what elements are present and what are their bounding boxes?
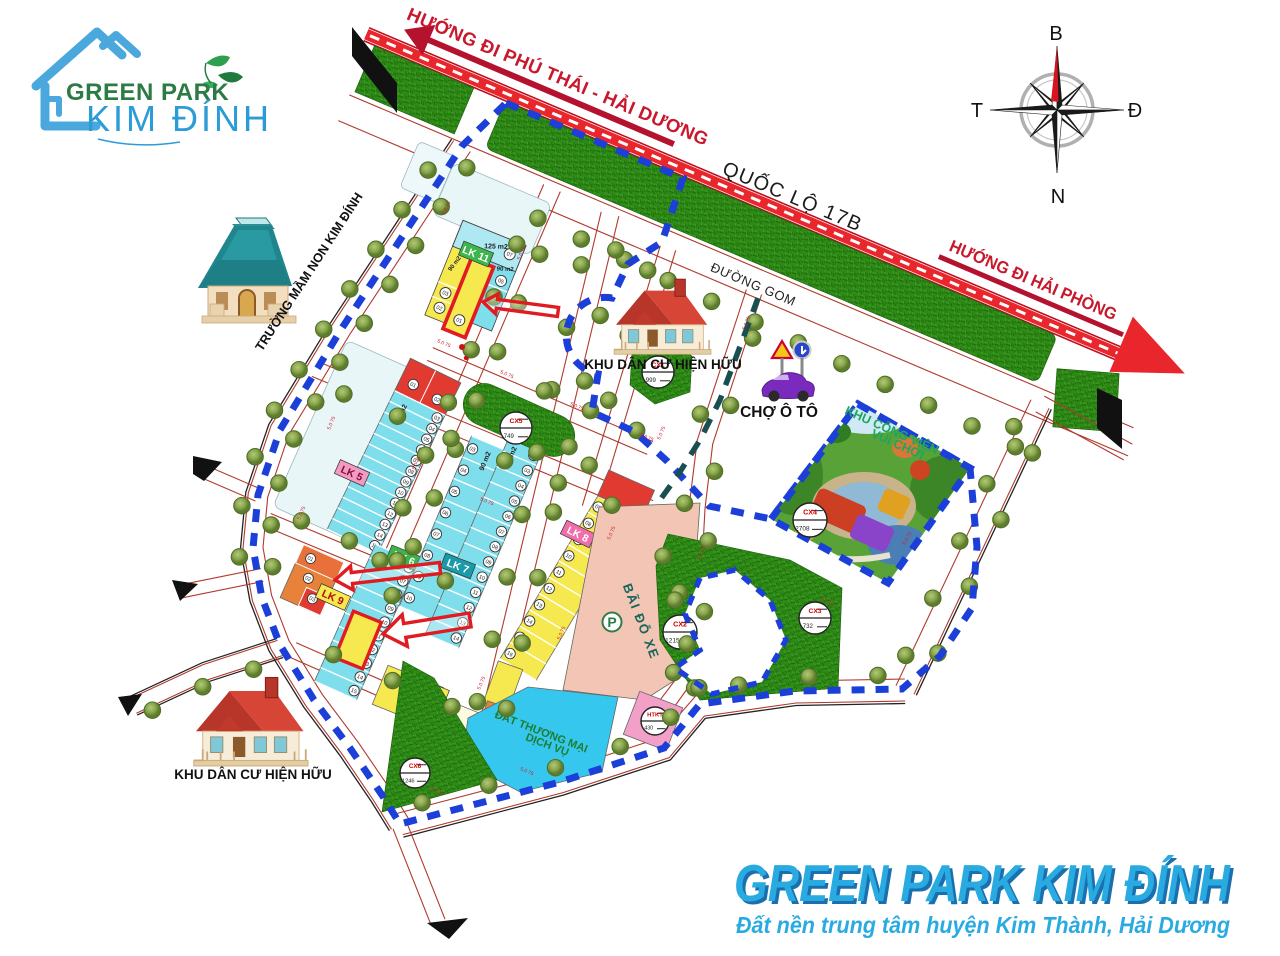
svg-text:Đất nền trung tâm huyện Kim Th: Đất nền trung tâm huyện Kim Thành, Hải D… xyxy=(736,912,1230,938)
svg-text:CX2: CX2 xyxy=(673,621,687,629)
svg-text:B: B xyxy=(1049,23,1062,45)
svg-text:CX6: CX6 xyxy=(409,763,422,770)
svg-text:KHU DÂN CƯ HIỆN HỮU: KHU DÂN CƯ HIỆN HỮU xyxy=(174,767,331,782)
svg-text:HTKT: HTKT xyxy=(647,713,663,719)
svg-text:KIM ĐÍNH: KIM ĐÍNH xyxy=(86,98,272,139)
svg-text:90 m2: 90 m2 xyxy=(497,267,515,274)
svg-text:T: T xyxy=(971,100,983,122)
svg-text:1215: 1215 xyxy=(665,638,680,645)
svg-text:2708: 2708 xyxy=(795,526,810,533)
svg-text:N: N xyxy=(1051,186,1065,208)
svg-text:749: 749 xyxy=(504,433,515,440)
svg-text:732: 732 xyxy=(803,623,814,630)
svg-text:430: 430 xyxy=(644,726,653,732)
svg-text:999: 999 xyxy=(646,377,657,384)
svg-text:1246: 1246 xyxy=(402,778,415,784)
svg-text:GREEN PARK KIM ĐÍNH: GREEN PARK KIM ĐÍNH xyxy=(734,855,1231,913)
svg-text:CX3: CX3 xyxy=(808,608,821,615)
svg-text:KHU DÂN CƯ HIỆN HỮU: KHU DÂN CƯ HIỆN HỮU xyxy=(584,357,741,372)
svg-text:P: P xyxy=(607,614,616,630)
svg-text:CX5: CX5 xyxy=(509,418,522,425)
svg-text:CX4: CX4 xyxy=(803,509,817,517)
svg-text:125 m2: 125 m2 xyxy=(484,243,508,251)
svg-text:CHỢ Ô TÔ: CHỢ Ô TÔ xyxy=(740,403,818,421)
svg-text:Đ: Đ xyxy=(1128,100,1142,122)
